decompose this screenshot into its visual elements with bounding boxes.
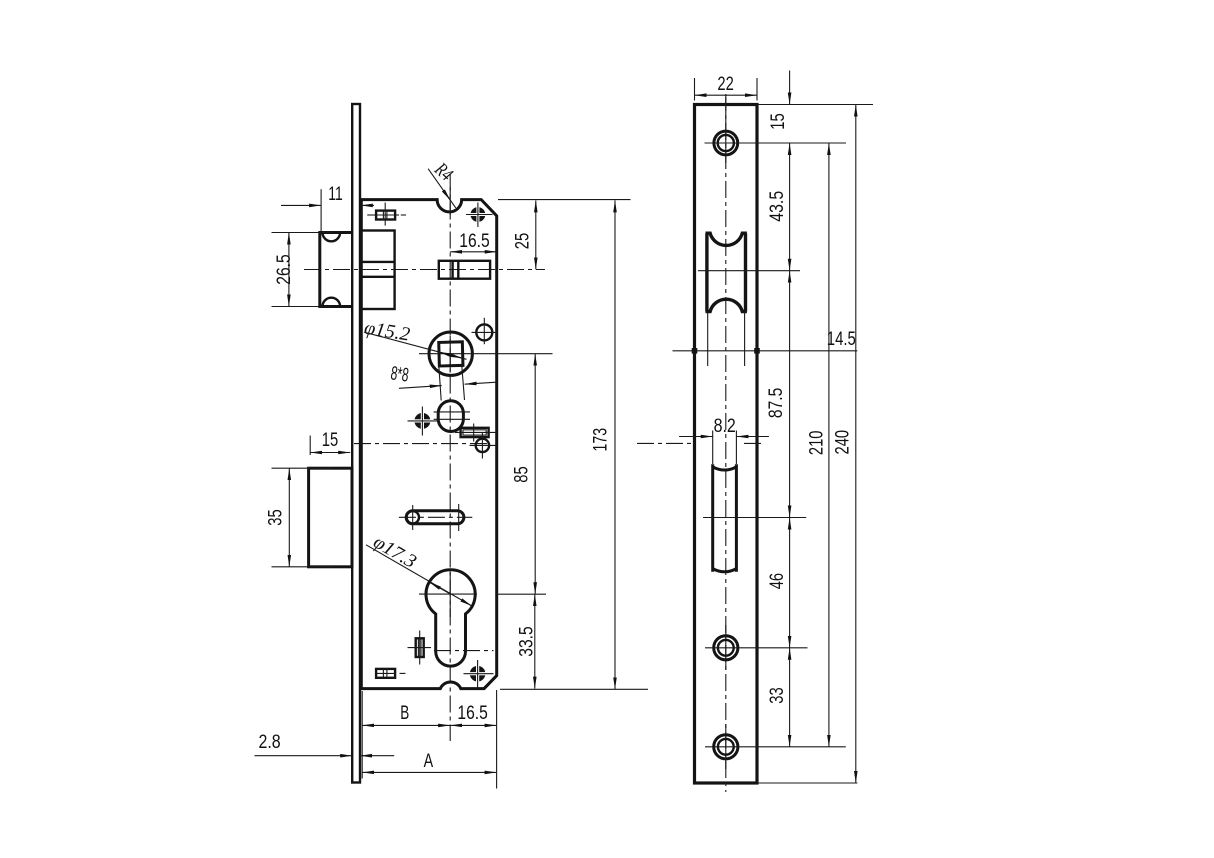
svg-text:173: 173: [590, 428, 612, 452]
svg-text:33: 33: [766, 687, 788, 703]
svg-text:8*8: 8*8: [389, 362, 410, 386]
svg-text:22: 22: [717, 73, 733, 95]
svg-text:11: 11: [328, 183, 343, 205]
svg-text:A: A: [424, 750, 434, 772]
svg-text:85: 85: [511, 466, 533, 482]
svg-text:15: 15: [767, 113, 789, 129]
svg-text:46: 46: [766, 573, 788, 589]
svg-text:240: 240: [832, 430, 854, 455]
svg-text:87.5: 87.5: [765, 388, 787, 418]
svg-text:14.5: 14.5: [827, 328, 856, 350]
svg-text:8.2: 8.2: [714, 415, 736, 437]
svg-text:B: B: [400, 702, 409, 724]
svg-text:16.5: 16.5: [457, 702, 487, 724]
svg-text:43.5: 43.5: [766, 191, 788, 222]
svg-text:25: 25: [512, 233, 534, 249]
svg-text:33.5: 33.5: [516, 626, 538, 656]
svg-text:16.5: 16.5: [459, 230, 489, 252]
svg-text:210: 210: [806, 430, 828, 455]
svg-text:15: 15: [322, 429, 338, 451]
svg-text:2.8: 2.8: [259, 731, 281, 753]
svg-text:35: 35: [265, 509, 287, 525]
svg-text:26.5: 26.5: [273, 254, 295, 284]
